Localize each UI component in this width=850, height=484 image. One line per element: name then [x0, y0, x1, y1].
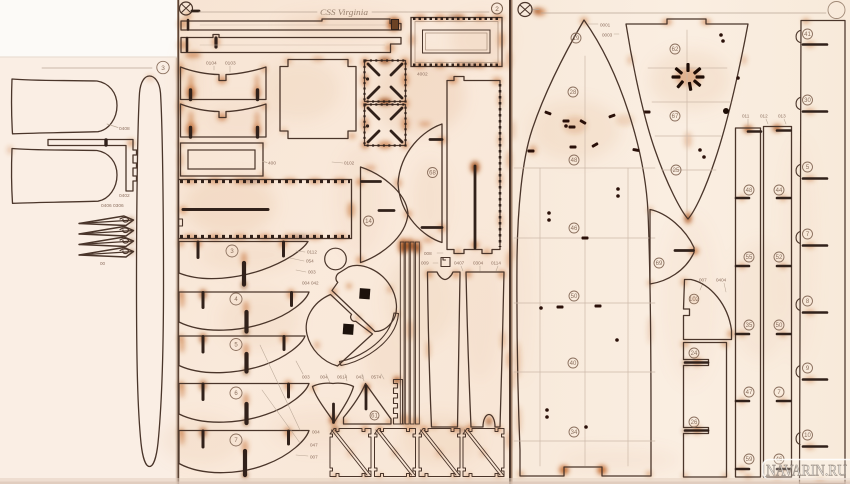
svg-text:14: 14: [365, 219, 372, 225]
svg-text:0402: 0402: [119, 193, 130, 199]
svg-text:004: 004: [320, 375, 328, 380]
svg-text:0406 0306: 0406 0306: [101, 203, 124, 209]
svg-text:52: 52: [776, 255, 783, 261]
svg-text:NAVARIN.RU: NAVARIN.RU: [766, 463, 847, 480]
svg-text:004: 004: [312, 430, 320, 435]
svg-text:400: 400: [268, 161, 276, 167]
svg-text:40: 40: [570, 361, 577, 367]
svg-text:25: 25: [673, 168, 680, 174]
svg-text:48: 48: [746, 188, 753, 194]
svg-text:0404: 0404: [716, 278, 727, 283]
svg-text:69: 69: [656, 261, 663, 267]
svg-text:0103: 0103: [225, 61, 236, 67]
svg-text:68: 68: [429, 171, 436, 177]
svg-text:0104: 0104: [206, 61, 217, 67]
svg-text:054: 054: [306, 259, 314, 264]
svg-text:59: 59: [746, 457, 753, 463]
svg-text:44: 44: [776, 188, 783, 194]
svg-text:00: 00: [100, 261, 106, 266]
svg-text:0102: 0102: [344, 161, 355, 166]
svg-text:41: 41: [804, 32, 811, 38]
svg-text:0574: 0574: [371, 375, 382, 380]
svg-text:10: 10: [804, 433, 811, 439]
svg-text:19: 19: [573, 36, 580, 42]
svg-text:0003: 0003: [602, 33, 613, 38]
svg-text:007: 007: [310, 455, 318, 460]
svg-text:4002: 4002: [417, 72, 428, 78]
svg-text:28: 28: [570, 90, 577, 96]
svg-text:3: 3: [161, 65, 165, 72]
svg-text:30: 30: [804, 98, 811, 104]
svg-text:26: 26: [691, 420, 698, 426]
svg-text:102: 102: [689, 297, 700, 303]
svg-text:34: 34: [571, 430, 578, 436]
svg-text:50: 50: [571, 294, 578, 300]
svg-text:047: 047: [310, 443, 318, 448]
svg-text:47: 47: [746, 390, 753, 396]
svg-text:2: 2: [495, 6, 499, 13]
svg-text:012: 012: [760, 114, 768, 119]
svg-text:0001: 0001: [600, 23, 611, 28]
svg-text:0407: 0407: [454, 261, 465, 266]
svg-text:003: 003: [308, 270, 316, 275]
svg-text:24: 24: [691, 351, 698, 357]
svg-text:009: 009: [421, 261, 429, 266]
svg-text:0304: 0304: [473, 261, 484, 266]
svg-text:50: 50: [776, 323, 783, 329]
svg-text:0112: 0112: [307, 250, 317, 255]
svg-text:004 042: 004 042: [302, 281, 319, 286]
svg-text:003: 003: [302, 375, 310, 380]
svg-text:008: 008: [424, 251, 432, 256]
svg-text:0408: 0408: [119, 126, 130, 132]
svg-text:55: 55: [746, 255, 753, 261]
svg-text:013: 013: [778, 114, 786, 119]
svg-text:46: 46: [571, 226, 578, 232]
svg-text:62: 62: [672, 47, 679, 53]
svg-text:61: 61: [371, 414, 378, 420]
svg-text:011: 011: [742, 114, 750, 119]
svg-text:48: 48: [571, 158, 578, 164]
svg-text:67: 67: [672, 114, 679, 120]
svg-text:35: 35: [746, 323, 753, 329]
svg-text:0114: 0114: [491, 261, 501, 266]
svg-text:CSS Virginia: CSS Virginia: [320, 7, 368, 17]
svg-text:007: 007: [699, 278, 707, 283]
